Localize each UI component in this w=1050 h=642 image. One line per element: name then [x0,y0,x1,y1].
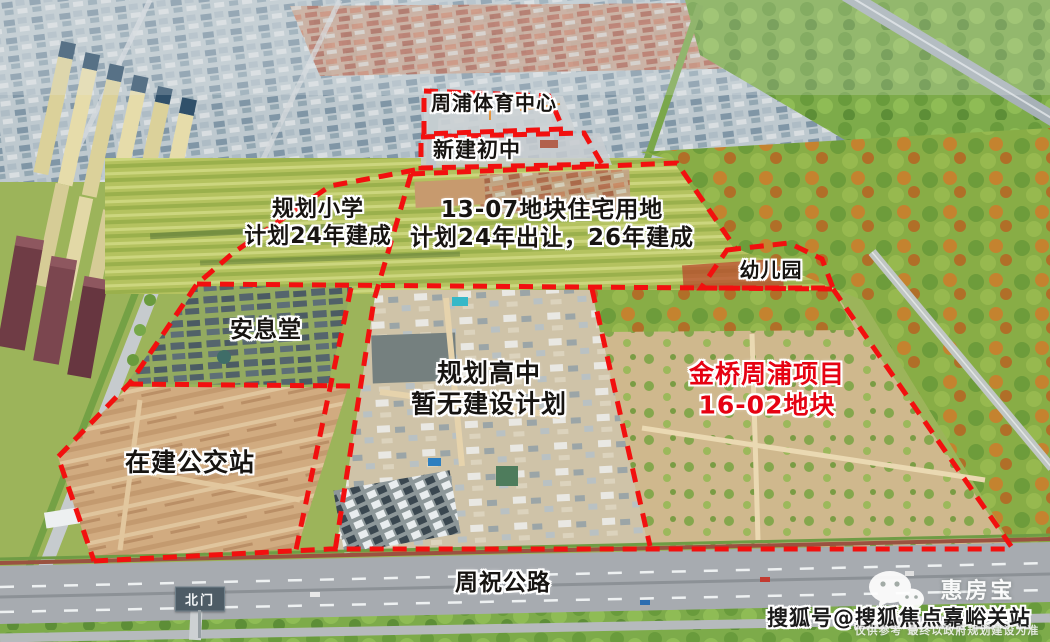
label-memorial-hall: 安息堂 [230,316,302,344]
annotated-aerial-map: 周浦体育中心 新建初中 规划小学 计划24年建成 13-07地块住宅用地 计划2… [0,0,1050,642]
label-sports-center: 周浦体育中心 [431,91,557,115]
north-gate-sign: 北门 [175,587,225,612]
label-project-16-02: 金桥周浦项目 16-02地块 [689,360,845,421]
label-planned-primary-line1: 规划小学 [244,197,392,224]
label-bus-station: 在建公交站 [125,448,255,479]
label-plot-13-07-line2: 计划24年出让，26年建成 [410,224,694,252]
label-plot-13-07-line1: 13-07地块住宅用地 [410,196,694,224]
label-planned-high-school-line2: 暂无建设计划 [411,389,567,420]
label-highway: 周祝公路 [455,569,551,597]
label-planned-high-school-line1: 规划高中 [411,359,567,390]
label-project-line2: 16-02地块 [689,390,845,421]
label-project-line1: 金桥周浦项目 [689,360,845,391]
haze [0,0,1050,95]
watermark-disclaimer: 仅供参考 最终以政府规划建设为准 [855,622,1040,638]
label-kindergarten: 幼儿园 [740,258,803,282]
label-plot-13-07: 13-07地块住宅用地 计划24年出让，26年建成 [410,196,694,252]
label-planned-primary-school: 规划小学 计划24年建成 [244,197,392,251]
label-planned-primary-line2: 计划24年建成 [244,224,392,251]
label-planned-high-school: 规划高中 暂无建设计划 [411,359,567,420]
watermark-brand: 惠房宝 [940,573,1015,605]
label-new-middle-school: 新建初中 [433,138,521,164]
north-gate-sign-pole [198,610,201,638]
